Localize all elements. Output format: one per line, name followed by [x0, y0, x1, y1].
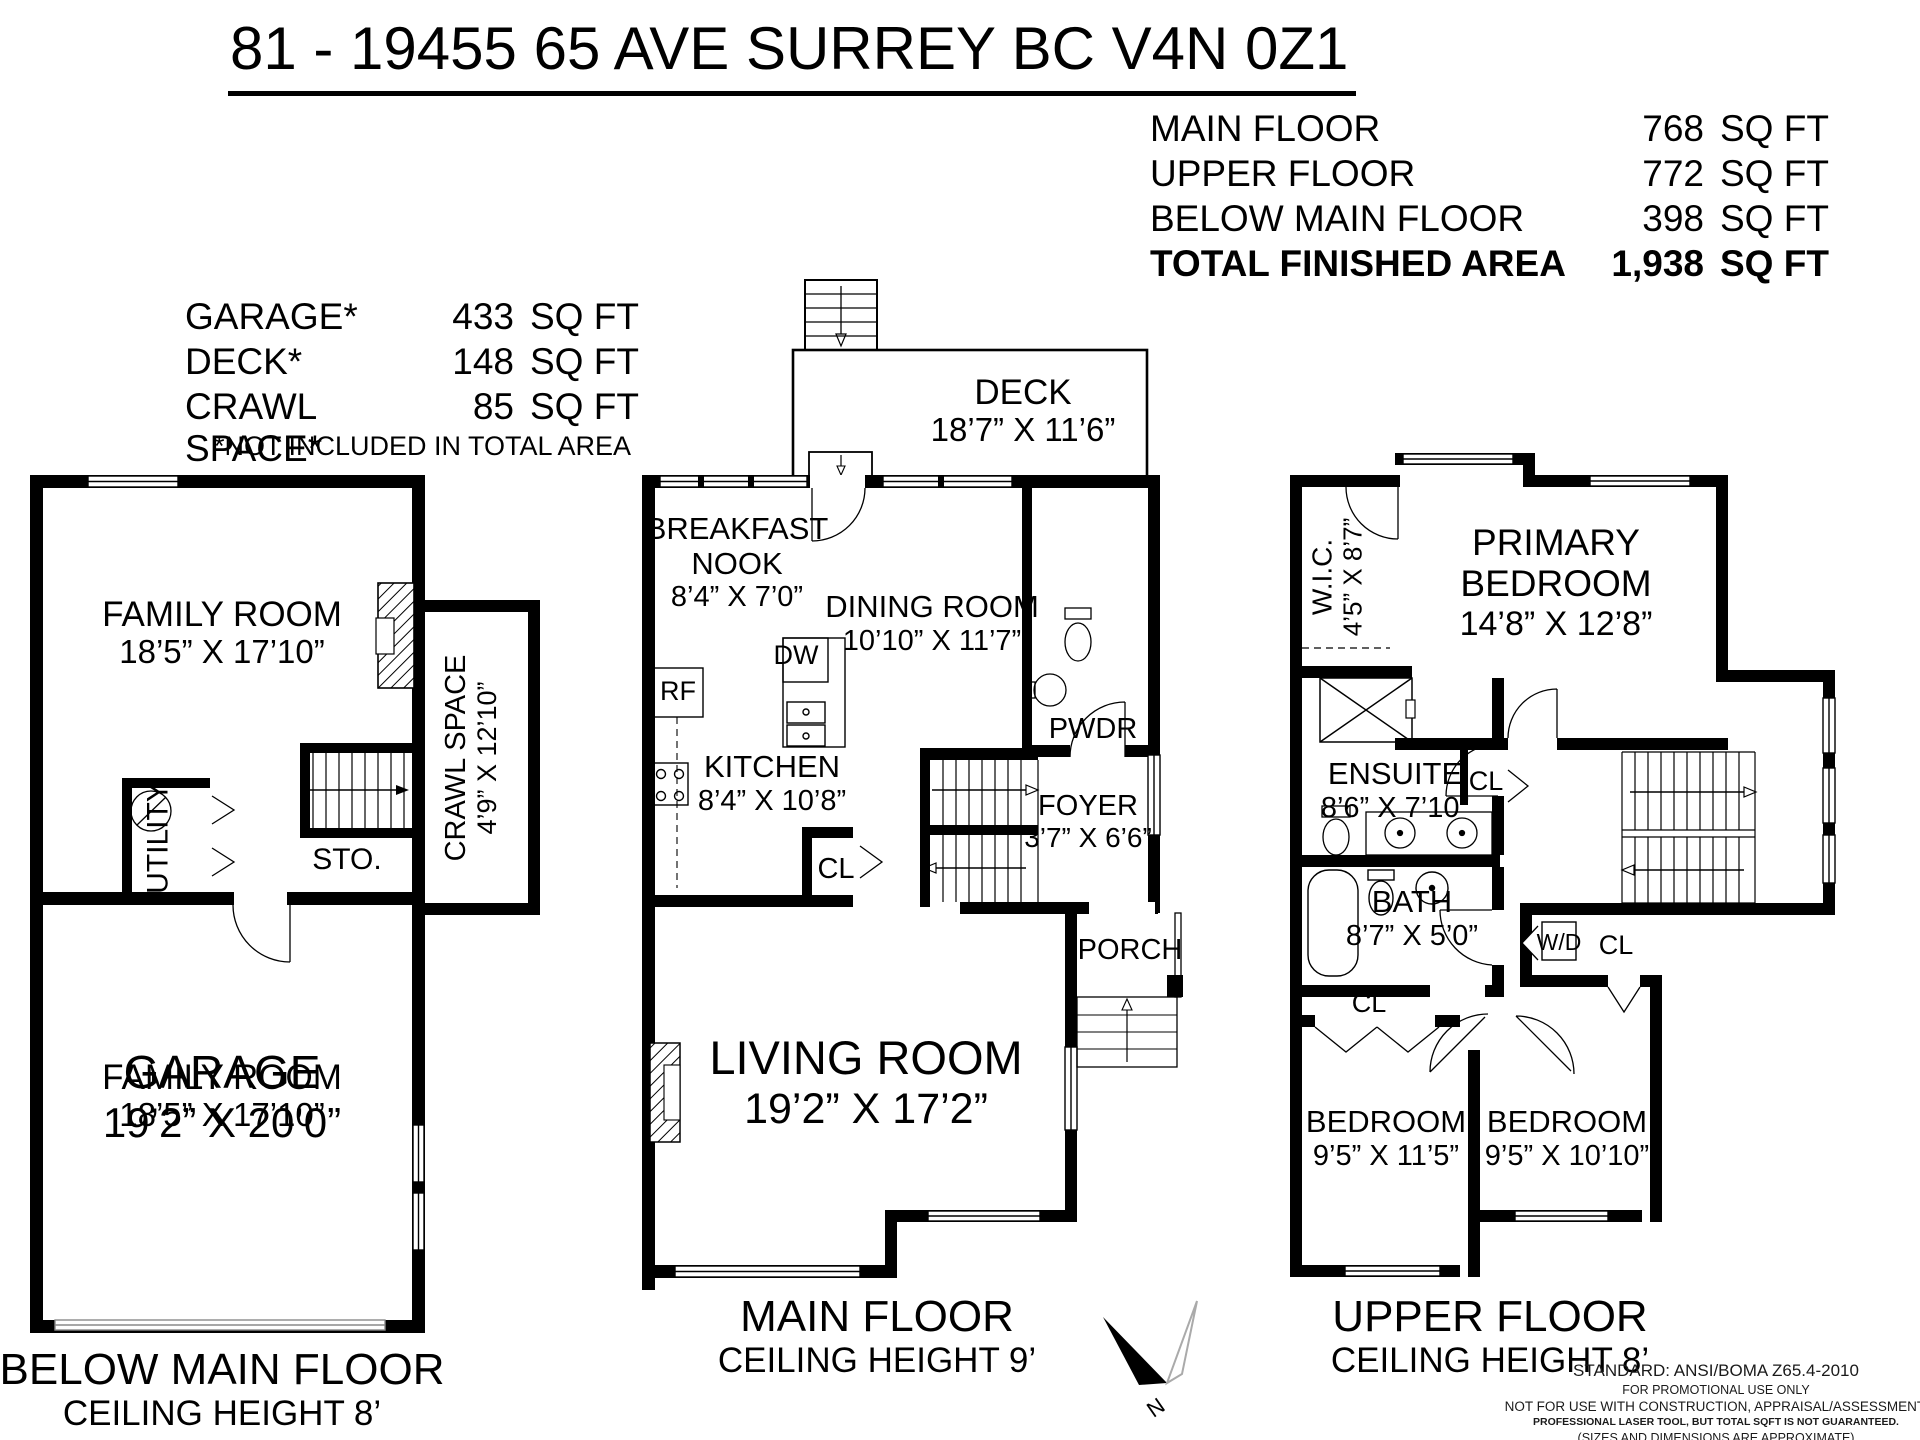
below-main-floorplan	[20, 460, 560, 1350]
summary-label: MAIN FLOOR	[1150, 108, 1584, 150]
room-name: BREAKFAST	[646, 512, 829, 547]
summary-row-total: TOTAL FINISHED AREA 1,938 SQ FT	[1150, 243, 1850, 288]
washer-dryer-label: W/D	[1537, 930, 1582, 956]
room-label-crawlspace: CRAWL SPACE 4’9” X 12’10”	[441, 655, 503, 862]
room-dims: 8’7” X 5’0”	[1346, 920, 1478, 952]
chimney-icon	[376, 583, 414, 688]
closet-label: CL	[1599, 930, 1634, 960]
sink-icon	[1034, 674, 1066, 706]
room-name: PRIMARY	[1460, 522, 1653, 563]
room-label-storage: STO.	[312, 843, 381, 877]
excluded-label: GARAGE*	[185, 296, 414, 338]
excluded-row: DECK* 148 SQ FT	[185, 341, 660, 386]
ceiling-height: CEILING HEIGHT 8’	[0, 1394, 444, 1433]
room-label-bedroom-right: BEDROOM 9’5” X 10’10”	[1485, 1105, 1649, 1172]
floor-caption-below-main: BELOW MAIN FLOOR CEILING HEIGHT 8’	[0, 1345, 444, 1433]
room-name: LIVING ROOM	[709, 1032, 1022, 1085]
summary-value: 772	[1584, 153, 1704, 195]
stairs-arrow	[1622, 865, 1634, 875]
disclaimer-line: NOT FOR USE WITH CONSTRUCTION, APPRAISAL…	[1505, 1398, 1920, 1416]
shower-icon	[1320, 678, 1415, 742]
excluded-label: DECK*	[185, 341, 414, 383]
garage-door-icon	[55, 1320, 385, 1330]
stairs-arrow	[396, 785, 409, 795]
room-label-bedroom-left: BEDROOM 9’5” X 11’5”	[1306, 1105, 1466, 1172]
summary-row: UPPER FLOOR 772 SQ FT	[1150, 153, 1850, 198]
room-label-utility: UTILITY	[142, 782, 175, 894]
fireplace-icon	[650, 1043, 680, 1142]
disclaimer-line: PROFESSIONAL LASER TOOL, BUT TOTAL SQFT …	[1505, 1416, 1920, 1430]
porch-label: PORCH	[1078, 934, 1183, 966]
closet-label: CL	[1469, 766, 1504, 796]
room-name: FOYER	[1024, 790, 1152, 822]
room-name: ENSUITE	[1321, 757, 1469, 792]
excluded-row: CRAWL SPACE* 85 SQ FT	[185, 386, 660, 431]
room-label-primary: PRIMARY BEDROOM 14’8” X 12’8”	[1460, 522, 1653, 643]
room-name: FAMILY ROOM	[102, 595, 342, 634]
closet-label: CL	[1352, 988, 1387, 1018]
fridge-label: RF	[660, 676, 696, 706]
room-name: DINING ROOM	[825, 590, 1039, 625]
floor-caption-main: MAIN FLOOR CEILING HEIGHT 9’	[718, 1292, 1036, 1380]
room-name: BATH	[1346, 885, 1478, 920]
closet-label: CL	[817, 853, 854, 885]
closet-chevron-icon	[860, 846, 882, 878]
toilet-icon	[1065, 608, 1091, 619]
excluded-summary: GARAGE* 433 SQ FT DECK* 148 SQ FT CRAWL …	[185, 296, 660, 462]
sink-icon	[787, 702, 825, 723]
room-dims: 10’10” X 11’7”	[825, 625, 1039, 657]
caption: UPPER FLOOR	[1331, 1292, 1649, 1341]
door-icon	[231, 892, 290, 962]
stairs-icon	[308, 753, 404, 828]
room-label-breakfast-nook: BREAKFAST NOOK 8’4” X 7’0”	[646, 512, 829, 614]
summary-value: 1,938	[1584, 243, 1704, 285]
ceiling-height: CEILING HEIGHT 9’	[718, 1341, 1036, 1380]
page-title: 81 - 19455 65 AVE SURREY BC V4N 0Z1	[228, 14, 1356, 96]
excluded-value: 433	[414, 296, 514, 338]
room-label-ensuite: ENSUITE 8’6” X 7’10”	[1321, 757, 1469, 824]
caption: MAIN FLOOR	[718, 1292, 1036, 1341]
room-label-deck: DECK 18’7” X 11’6”	[931, 373, 1116, 449]
room-label-living: LIVING ROOM 19’2” X 17’2”	[709, 1032, 1022, 1133]
room-name: BEDROOM	[1460, 563, 1653, 604]
toilet-icon	[1368, 870, 1394, 880]
powder-label: PWDR	[1049, 713, 1138, 745]
summary-label: TOTAL FINISHED AREA	[1150, 243, 1584, 285]
stairs-arrow	[1744, 787, 1756, 797]
floorplan-page: 81 - 19455 65 AVE SURREY BC V4N 0Z1 MAIN…	[0, 0, 1920, 1440]
room-label-kitchen: KITCHEN 8’4” X 10’8”	[698, 750, 846, 817]
room-name: NOOK	[646, 547, 829, 582]
room-name: W.I.C.	[1307, 518, 1338, 637]
room-name: BEDROOM	[1306, 1105, 1466, 1140]
disclaimer-line: (SIZES AND DIMENSIONS ARE APPROXIMATE)	[1505, 1430, 1920, 1440]
room-dims: 3’7” X 6’6”	[1024, 822, 1152, 853]
room-dims: 18’5” X 17’10”	[102, 634, 342, 671]
summary-unit: SQ FT	[1704, 198, 1850, 240]
room-label-foyer: FOYER 3’7” X 6’6”	[1024, 790, 1152, 854]
room-dims: 8’4” X 7’0”	[646, 581, 829, 613]
summary-unit: SQ FT	[1704, 153, 1850, 195]
disclaimer-line: FOR PROMOTIONAL USE ONLY	[1505, 1382, 1920, 1398]
summary-value: 398	[1584, 198, 1704, 240]
room-dims: 4’5” X 8’7”	[1338, 518, 1367, 637]
room-dims: 14’8” X 12’8”	[1460, 605, 1653, 643]
area-summary: MAIN FLOOR 768 SQ FT UPPER FLOOR 772 SQ …	[1150, 108, 1850, 288]
excluded-value: 148	[414, 341, 514, 383]
room-label-dining: DINING ROOM 10’10” X 11’7”	[825, 590, 1039, 657]
room-dims: 9’5” X 11’5”	[1306, 1140, 1466, 1172]
dishwasher-label: DW	[774, 640, 819, 670]
room-name: DECK	[931, 373, 1116, 412]
room-dims: 9’5” X 10’10”	[1485, 1140, 1649, 1172]
summary-unit: SQ FT	[1704, 243, 1850, 285]
summary-label: BELOW MAIN FLOOR	[1150, 198, 1584, 240]
room-dims: 18’7” X 11’6”	[931, 412, 1116, 449]
room-name: BEDROOM	[1485, 1105, 1649, 1140]
caption: BELOW MAIN FLOOR	[0, 1345, 444, 1394]
room-name: CRAWL SPACE	[441, 655, 473, 862]
room-name: GARAGE	[103, 1047, 341, 1099]
room-dims: 19’2” X 20’0”	[103, 1099, 341, 1146]
room-dims: 8’4” X 10’8”	[698, 785, 846, 817]
summary-value: 768	[1584, 108, 1704, 150]
stairs-icon	[1622, 752, 1755, 903]
room-dims: 4’9” X 12’10”	[473, 655, 503, 862]
room-label-bath: BATH 8’7” X 5’0”	[1346, 885, 1478, 952]
summary-label: UPPER FLOOR	[1150, 153, 1584, 195]
room-dims: 8’6” X 7’10”	[1321, 792, 1469, 824]
summary-row: BELOW MAIN FLOOR 398 SQ FT	[1150, 198, 1850, 243]
room-dims: 19’2” X 17’2”	[709, 1085, 1022, 1133]
disclaimer-line: STANDARD: ANSI/BOMA Z65.4-2010	[1505, 1360, 1920, 1382]
door-chevron-icon	[212, 796, 234, 876]
disclaimer: STANDARD: ANSI/BOMA Z65.4-2010 FOR PROMO…	[1505, 1360, 1920, 1440]
room-name: KITCHEN	[698, 750, 846, 785]
excluded-note: *NOT INCLUDED IN TOTAL AREA	[185, 431, 660, 462]
sink-icon	[787, 725, 825, 746]
room-label-garage: GARAGE 19’2” X 20’0”	[103, 1047, 341, 1146]
summary-unit: SQ FT	[1704, 108, 1850, 150]
room-label-wic: W.I.C. 4’5” X 8’7”	[1307, 518, 1366, 637]
excluded-value: 85	[414, 386, 514, 428]
excluded-row: GARAGE* 433 SQ FT	[185, 296, 660, 341]
room-label-familyroom: FAMILY ROOM 18’5” X 17’10”	[102, 595, 342, 671]
summary-row: MAIN FLOOR 768 SQ FT	[1150, 108, 1850, 153]
